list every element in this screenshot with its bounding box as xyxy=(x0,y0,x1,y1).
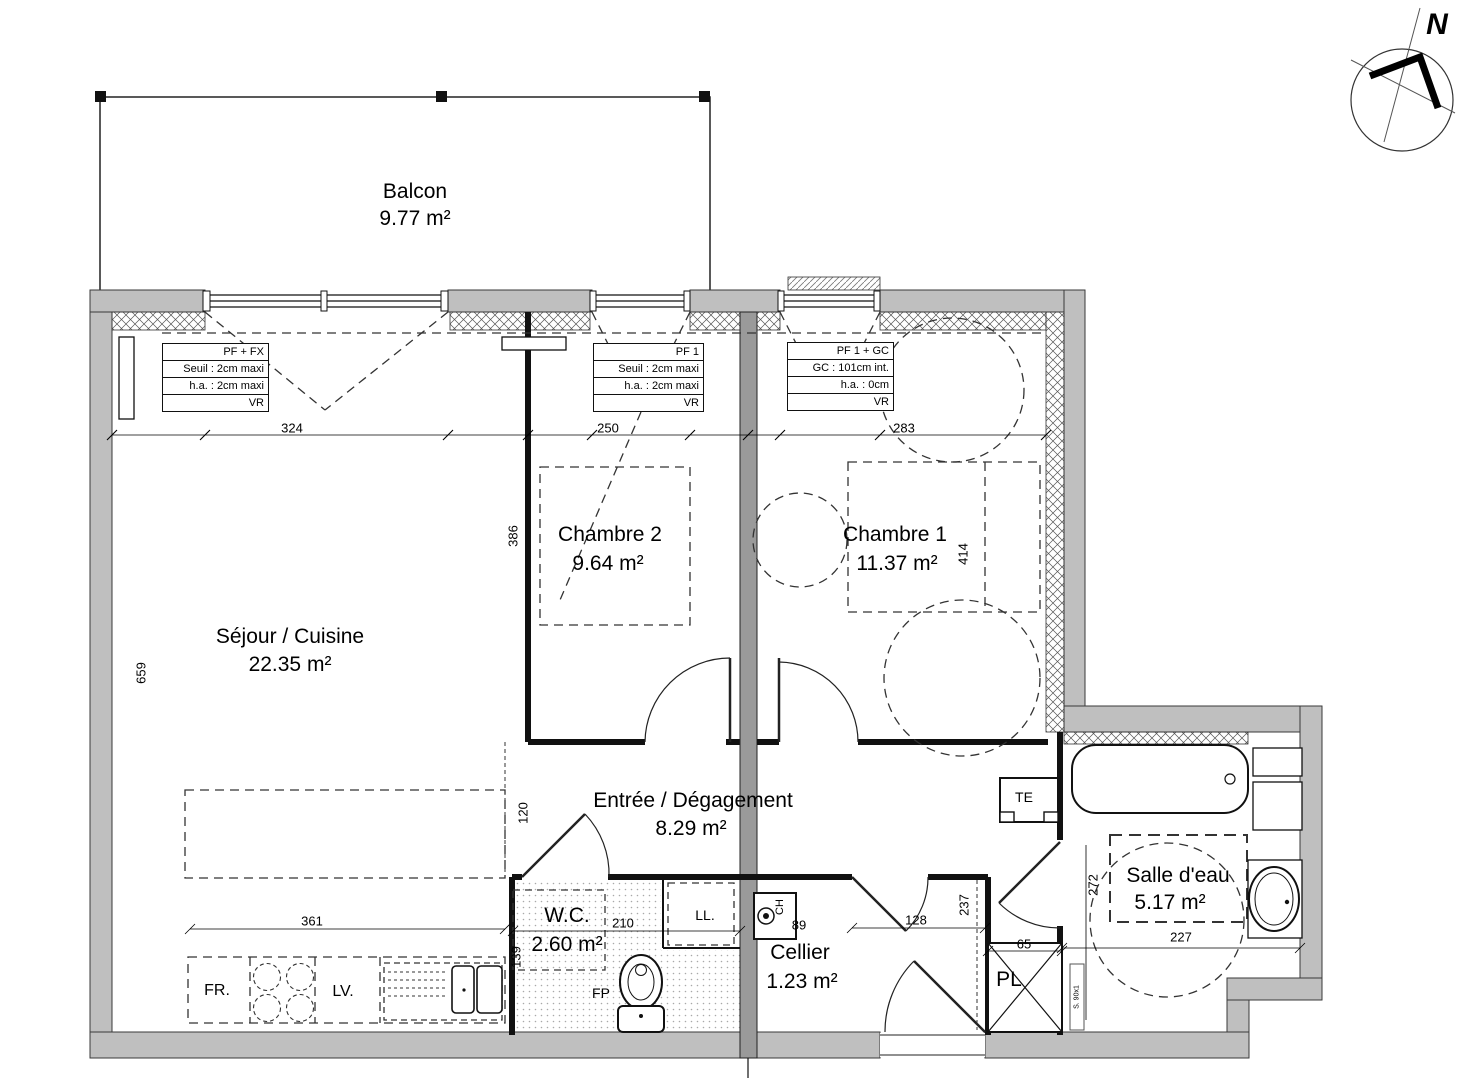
boiler-label: CH xyxy=(774,899,786,915)
room-label-chambre2-area: 9.64 m² xyxy=(572,552,643,576)
dim-win1: 324 xyxy=(281,421,303,436)
window-spec-box-3: PF 1 + GC GC : 101cm int. h.a. : 0cm VR xyxy=(787,342,894,411)
dim-win2: 250 xyxy=(597,421,619,436)
dim-entree-h: 120 xyxy=(516,802,531,824)
room-label-chambre1-area: 11.37 m² xyxy=(856,552,937,576)
dim-wc-w: 210 xyxy=(612,916,634,931)
floor-plan-drawing xyxy=(0,0,1479,1080)
dim-ch1-h: 414 xyxy=(956,543,971,565)
washing-machine-label: LL. xyxy=(695,907,714,923)
door-size-tag: S. 90x1 xyxy=(1074,985,1081,1009)
dim-ch-w: 89 xyxy=(792,918,806,933)
closet-label: PL xyxy=(996,968,1022,992)
dim-cellier-w: 128 xyxy=(905,913,927,928)
dim-kitchen-w: 361 xyxy=(301,914,323,929)
spec-row: VR xyxy=(163,395,268,411)
spec-row: h.a. : 2cm maxi xyxy=(594,378,703,395)
spec-row: VR xyxy=(788,394,893,410)
spec-row: GC : 101cm int. xyxy=(788,360,893,377)
dim-bain-w: 227 xyxy=(1170,930,1192,945)
dishwasher-label: LV. xyxy=(332,983,353,1001)
room-label-entree-name: Entrée / Dégagement xyxy=(593,789,793,813)
room-label-sejour-area: 22.35 m² xyxy=(249,653,332,677)
dim-ch2-h: 386 xyxy=(506,525,521,547)
room-label-entree-area: 8.29 m² xyxy=(655,817,726,841)
north-label: N xyxy=(1426,8,1448,42)
spec-row: h.a. : 0cm xyxy=(788,377,893,394)
room-label-balcon-area: 9.77 m² xyxy=(379,207,450,231)
room-label-balcon-name: Balcon xyxy=(383,180,447,204)
room-label-chambre1-name: Chambre 1 xyxy=(843,523,947,547)
room-label-sejour-name: Séjour / Cuisine xyxy=(216,625,364,649)
dim-cellier-h: 237 xyxy=(957,894,972,916)
room-label-chambre2-name: Chambre 2 xyxy=(558,523,662,547)
fridge-label: FR. xyxy=(204,982,230,1000)
room-label-salle-eau-name: Salle d'eau xyxy=(1126,864,1229,888)
spec-row: PF + FX xyxy=(163,344,268,361)
spec-row: Seuil : 2cm maxi xyxy=(163,361,268,378)
room-label-wc-name: W.C. xyxy=(544,904,590,928)
dim-sejour-h: 659 xyxy=(134,662,149,684)
window-spec-box-2: PF 1 Seuil : 2cm maxi h.a. : 2cm maxi VR xyxy=(593,343,704,412)
dim-kitchen-h: 139 xyxy=(509,946,524,968)
room-label-cellier-name: Cellier xyxy=(770,941,830,965)
room-label-wc-area: 2.60 m² xyxy=(531,933,602,957)
spec-row: Seuil : 2cm maxi xyxy=(594,361,703,378)
dim-pl-w: 65 xyxy=(1017,937,1031,952)
te-label: TE xyxy=(1015,789,1033,805)
spec-row: h.a. : 2cm maxi xyxy=(163,378,268,395)
spec-row: PF 1 xyxy=(594,344,703,361)
room-label-salle-eau-area: 5.17 m² xyxy=(1134,891,1205,915)
floor-plan: Balcon 9.77 m² Séjour / Cuisine 22.35 m²… xyxy=(0,0,1479,1080)
window-spec-box-1: PF + FX Seuil : 2cm maxi h.a. : 2cm maxi… xyxy=(162,343,269,412)
dim-bain-h: 272 xyxy=(1086,874,1101,896)
spec-row: VR xyxy=(594,395,703,411)
room-label-cellier-area: 1.23 m² xyxy=(766,970,837,994)
spec-row: PF 1 + GC xyxy=(788,343,893,360)
fp-label: FP xyxy=(592,985,610,1001)
dim-win3: 283 xyxy=(893,421,915,436)
fixtures xyxy=(119,337,1302,1032)
